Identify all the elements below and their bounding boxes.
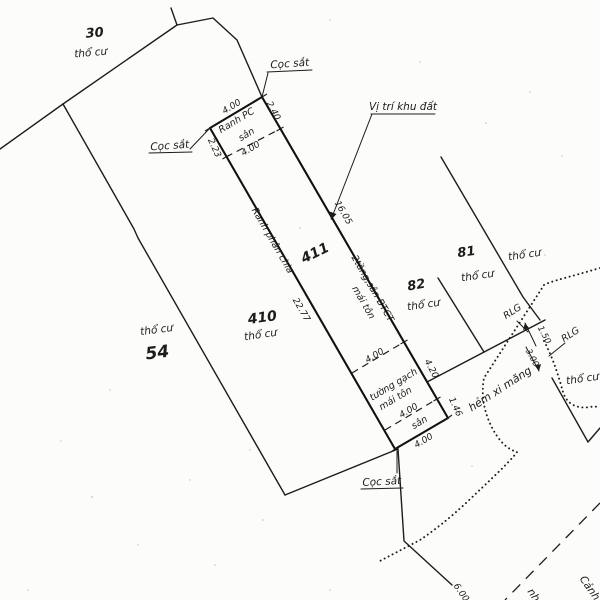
parcel-landuse-neighbor-southeast: thổ cư	[565, 370, 600, 388]
dim-right-upper: 2.40	[264, 100, 282, 123]
dim-tick	[444, 415, 452, 421]
dim-rlg-offset: 1.50	[535, 324, 553, 345]
boundary-82-south	[438, 278, 484, 352]
parcel-landuse-81: thổ cư	[460, 267, 496, 285]
leaders	[149, 70, 565, 489]
boundary-west-long	[63, 104, 285, 495]
survey-drawing: 30 thổ cư thổ cư 54 410 thổ cư 411 82 th…	[0, 0, 600, 600]
leader-iron-stake-left	[190, 129, 209, 149]
alley-vertical-line	[398, 449, 452, 585]
annotation-labels: Cọc sắt Cọc sắt Cọc sắt Vị trí khu đất R…	[150, 56, 600, 600]
boundary-top-north	[171, 8, 262, 97]
parcel-number-82: 82	[406, 277, 426, 295]
parcel-number-54: 54	[144, 342, 170, 365]
boundary-lines	[0, 8, 600, 585]
dimension-labels: 4.00 2.23 2.40 4.00 16.05 22.77 4.00 4.2…	[205, 98, 553, 600]
iron-stake-label-top: Cọc sắt	[270, 56, 311, 72]
road-boundary-lines	[378, 268, 600, 600]
edge-fragment-nh: nh	[525, 586, 542, 600]
iron-stake-label-left: Cọc sắt	[150, 138, 191, 154]
dim-right-bottom: 1.46	[446, 396, 464, 419]
yard-label-bottom: sân	[410, 414, 430, 432]
division-boundary-label: Ranh phân chia	[249, 206, 296, 276]
parcel-landuse-neighbor-right: thổ cư	[507, 246, 543, 264]
parcel-landuse-30: thổ cư	[74, 44, 109, 60]
site-location-label: Vị trí khu đất	[369, 101, 438, 113]
rlg-label-1: RLG	[502, 302, 524, 322]
leader-rlg-2	[549, 343, 565, 356]
parcel-number-411: 411	[298, 240, 332, 268]
boundary-82-81	[441, 157, 540, 320]
dim-edge-fragment: 6.00	[451, 582, 471, 600]
iron-stake-label-bottom: Cọc sắt	[362, 474, 402, 489]
edge-fragment-canh: Cảnh	[577, 574, 600, 600]
parcel-landuse-410: thổ cư	[243, 326, 279, 344]
parcel-landuse-54: thổ cư	[139, 321, 175, 338]
dim-left-upper: 2.23	[205, 137, 223, 160]
parcel-number-410: 410	[246, 308, 278, 328]
alley-label: hẻm xi măng	[466, 364, 534, 414]
dim-wall-top-width: 4.00	[364, 347, 387, 366]
leader-iron-stake-top	[262, 73, 268, 97]
parcel-number-81: 81	[457, 244, 477, 261]
boundary-southeast-corner	[552, 378, 600, 442]
boundary-northwest	[0, 25, 177, 149]
parcel-number-30: 30	[85, 25, 104, 42]
parcel-landuse-82: thổ cư	[406, 296, 442, 314]
dim-bottom-width: 4.00	[413, 432, 436, 451]
rlg-label-2: RLG	[560, 325, 582, 345]
cadastral-sketch: 30 thổ cư thổ cư 54 410 thổ cư 411 82 th…	[0, 0, 600, 600]
